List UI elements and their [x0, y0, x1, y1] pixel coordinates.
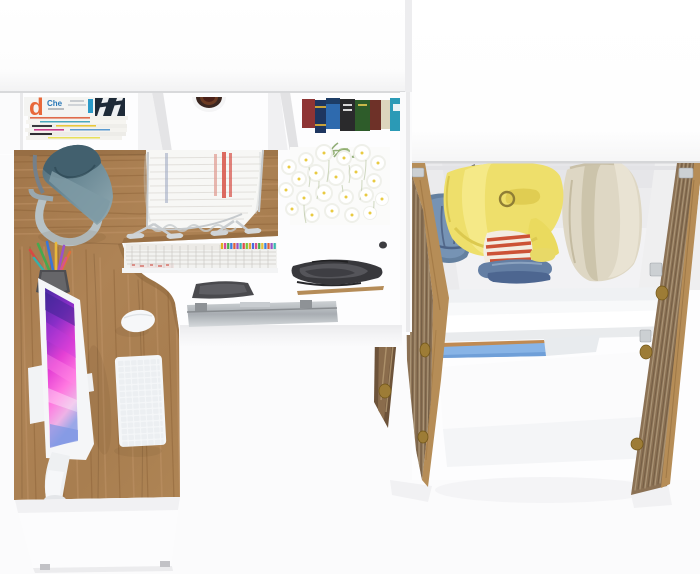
svg-text:Che: Che [47, 99, 63, 108]
